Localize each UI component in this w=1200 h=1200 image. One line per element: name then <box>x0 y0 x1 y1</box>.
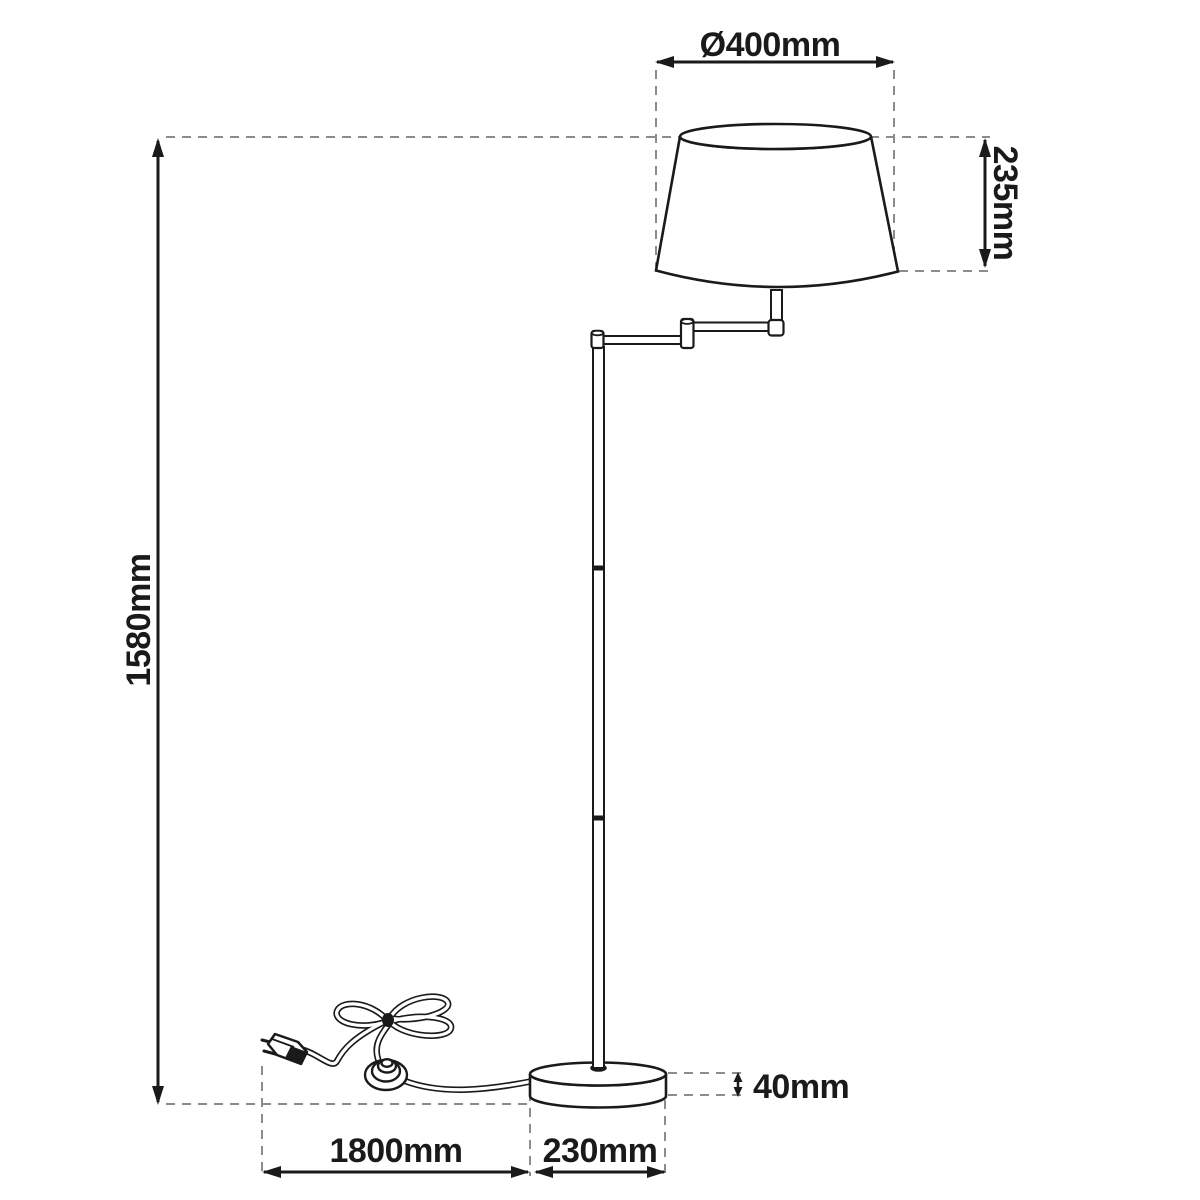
power-plug <box>262 1034 307 1064</box>
foot-switch <box>365 1059 407 1090</box>
arrowhead-right <box>511 1166 530 1178</box>
elbow-joint <box>769 320 784 336</box>
arrowhead-left <box>262 1166 281 1178</box>
shade-top-rim <box>680 124 871 149</box>
pole-top-joint-cap <box>592 331 604 336</box>
dim-base-diameter: 230mm <box>534 1132 666 1178</box>
lamp-pole <box>591 347 606 1071</box>
arrowhead-right <box>876 56 895 68</box>
shade-stub <box>771 290 782 322</box>
pole-joint-band-upper <box>593 566 605 571</box>
cable-knot <box>382 1013 394 1027</box>
shade-body <box>656 137 898 288</box>
dim-shade-height: 235mm <box>979 138 1024 268</box>
arrowhead-up <box>152 138 164 157</box>
cable-length-label: 1800mm <box>329 1132 462 1170</box>
arrowhead-left <box>655 56 674 68</box>
base-height-label: 40mm <box>753 1068 849 1106</box>
pole-shaft <box>593 347 604 1068</box>
arrowhead-down <box>152 1086 164 1105</box>
swivel-joint-cap <box>681 319 693 324</box>
dim-base-height: 40mm <box>734 1068 850 1106</box>
lamp-shade <box>656 124 898 287</box>
pole-joint-band-lower <box>593 816 605 821</box>
foot-switch-button <box>382 1059 393 1067</box>
swing-arm-upper <box>692 323 770 332</box>
swing-arm-lower <box>601 336 682 344</box>
shade-diameter-label: Ø400mm <box>700 26 841 64</box>
base-diameter-label: 230mm <box>543 1132 658 1170</box>
total-height-label: 1580mm <box>120 553 158 686</box>
dim-total-height: 1580mm <box>120 138 164 1105</box>
dim-shade-diameter: Ø400mm <box>655 26 895 68</box>
dimension-diagram: Ø400mm 235mm 1580mm 40mm 1800mm 230mm <box>0 0 1200 1200</box>
dimension-diagram-svg: Ø400mm 235mm 1580mm 40mm 1800mm 230mm <box>0 0 1200 1200</box>
dim-cable-length: 1800mm <box>262 1132 530 1178</box>
power-cable <box>300 997 533 1090</box>
shade-height-label: 235mm <box>986 146 1024 261</box>
